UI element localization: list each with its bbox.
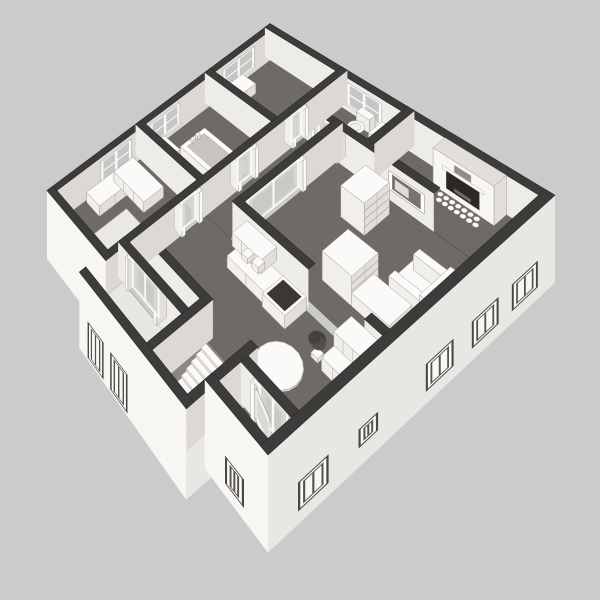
- floorplan-3d-render: [0, 0, 600, 600]
- floorplan-canvas: [0, 0, 600, 600]
